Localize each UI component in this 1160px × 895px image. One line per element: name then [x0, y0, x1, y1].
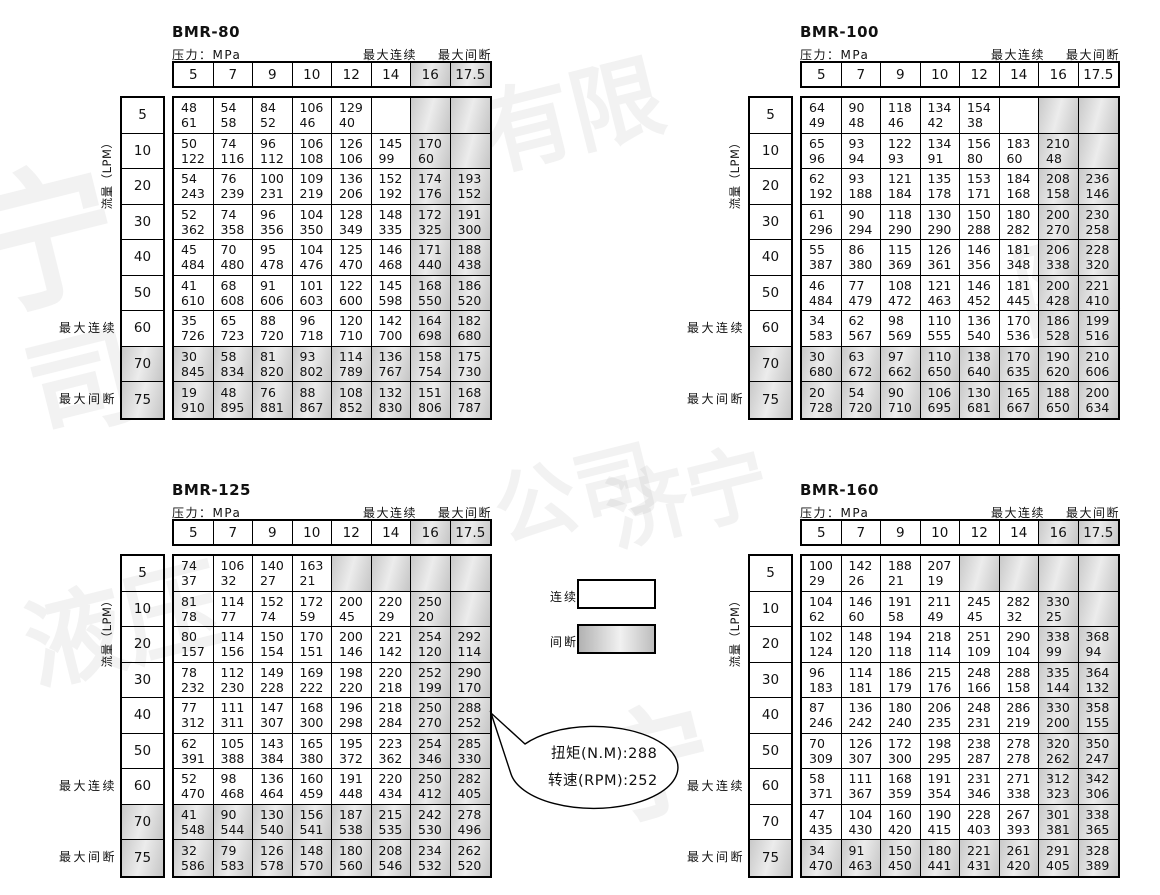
speed-value: 606 — [1086, 364, 1119, 379]
torque-value: 164 — [418, 313, 450, 328]
speed-value: 78 — [181, 609, 213, 624]
torque-value: 96 — [260, 207, 292, 222]
data-cell: 46484 — [802, 276, 842, 312]
data-cell: 30845 — [174, 347, 214, 383]
torque-value: 118 — [888, 100, 920, 115]
speed-value: 32 — [1007, 609, 1039, 624]
data-cell: 14660 — [842, 592, 882, 628]
flow-label-cell: 75 — [750, 382, 791, 418]
data-cell: 148335 — [372, 205, 412, 241]
data-cell: 248166 — [960, 663, 1000, 699]
data-cell: 76881 — [253, 382, 293, 418]
torque-value: 200 — [1046, 278, 1078, 293]
data-cell: 282405 — [451, 769, 491, 805]
torque-value: 61 — [809, 207, 841, 222]
data-cell: 156541 — [293, 805, 333, 841]
speed-value: 830 — [379, 400, 411, 415]
data-cell: 30680 — [802, 347, 842, 383]
pressure-header-cell: 17.5 — [451, 521, 491, 544]
data-cell: 70480 — [214, 240, 254, 276]
speed-value: 350 — [300, 222, 332, 237]
data-cell: 228403 — [960, 805, 1000, 841]
data-cell: 342306 — [1079, 769, 1119, 805]
speed-value: 634 — [1086, 400, 1119, 415]
speed-value: 726 — [181, 328, 213, 343]
torque-value: 199 — [1086, 313, 1119, 328]
max-continuous-row-label-bmr-100: 最大连续 — [650, 319, 745, 336]
table-title-bmr-100: BMR-100 — [800, 23, 879, 41]
data-cell — [1000, 98, 1040, 134]
flow-label-cell: 75 — [750, 840, 791, 876]
data-cell: 250270 — [411, 698, 451, 734]
speed-value: 348 — [1007, 257, 1039, 272]
torque-value: 210 — [1046, 136, 1078, 151]
data-grid-bmr-160: 1002914226188212071910462146601915821149… — [800, 554, 1120, 878]
speed-value: 463 — [928, 293, 960, 308]
torque-value: 130 — [928, 207, 960, 222]
pressure-header-cell: 17.5 — [1079, 521, 1119, 544]
callout-torque-text: 扭矩(N.M):288 — [551, 742, 657, 763]
speed-value: 199 — [418, 680, 450, 695]
speed-value: 242 — [849, 715, 881, 730]
speed-value: 718 — [300, 328, 332, 343]
speed-value: 219 — [1007, 715, 1039, 730]
torque-value: 134 — [928, 136, 960, 151]
data-cell: 148120 — [842, 627, 882, 663]
pressure-header-cell: 9 — [253, 521, 293, 544]
flow-label-column-bmr-160: 51020304050607075 — [748, 554, 793, 878]
speed-value: 32 — [221, 573, 253, 588]
torque-value: 186 — [888, 665, 920, 680]
torque-value: 245 — [967, 594, 999, 609]
torque-value: 106 — [300, 136, 332, 151]
data-cell: 152192 — [372, 169, 412, 205]
torque-value: 146 — [967, 278, 999, 293]
pressure-header-cell: 10 — [921, 63, 961, 86]
data-cell: 230258 — [1079, 205, 1119, 241]
speed-value: 405 — [1046, 858, 1078, 873]
pressure-header-cell: 10 — [293, 63, 333, 86]
data-cell: 220218 — [372, 663, 412, 699]
speed-value: 243 — [181, 186, 213, 201]
speed-value: 114 — [458, 644, 491, 659]
speed-value: 200 — [1046, 715, 1078, 730]
pressure-header-cell: 5 — [174, 63, 214, 86]
speed-value: 166 — [967, 680, 999, 695]
speed-value: 541 — [300, 822, 332, 837]
torque-value: 168 — [418, 278, 450, 293]
speed-value: 548 — [181, 822, 213, 837]
torque-value: 188 — [1046, 385, 1078, 400]
torque-value: 110 — [928, 349, 960, 364]
torque-value: 81 — [181, 594, 213, 609]
torque-value: 170 — [418, 136, 450, 151]
data-cell: 18360 — [1000, 134, 1040, 170]
torque-value: 30 — [809, 349, 841, 364]
data-cell: 149228 — [253, 663, 293, 699]
data-cell: 175730 — [451, 347, 491, 383]
data-cell: 128349 — [332, 205, 372, 241]
torque-value: 148 — [300, 843, 332, 858]
torque-value: 30 — [181, 349, 213, 364]
torque-value: 140 — [260, 558, 292, 573]
data-cell: 169222 — [293, 663, 333, 699]
torque-value: 278 — [458, 807, 491, 822]
torque-value: 152 — [379, 171, 411, 186]
speed-value: 59 — [300, 609, 332, 624]
speed-value: 767 — [379, 364, 411, 379]
torque-value: 288 — [458, 700, 491, 715]
speed-value: 171 — [967, 186, 999, 201]
data-cell: 101603 — [293, 276, 333, 312]
flow-label-cell: 5 — [122, 556, 163, 592]
speed-value: 338 — [1046, 257, 1078, 272]
speed-value: 650 — [1046, 400, 1078, 415]
speed-value: 80 — [967, 151, 999, 166]
table-title-bmr-160: BMR-160 — [800, 481, 879, 499]
data-cell: 48895 — [214, 382, 254, 418]
speed-value: 410 — [1086, 293, 1119, 308]
torque-value: 134 — [928, 100, 960, 115]
torque-value: 90 — [849, 207, 881, 222]
data-cell: 88720 — [253, 311, 293, 347]
speed-value: 26 — [849, 573, 881, 588]
torque-value: 168 — [300, 700, 332, 715]
data-cell: 34583 — [802, 311, 842, 347]
torque-value: 254 — [418, 629, 450, 644]
flow-label-cell: 30 — [750, 205, 791, 241]
data-cell: 5458 — [214, 98, 254, 134]
speed-value: 290 — [888, 222, 920, 237]
data-cell: 186528 — [1039, 311, 1079, 347]
data-cell: 200428 — [1039, 276, 1079, 312]
flow-axis-label-bmr-160: 流量（LPM） — [727, 581, 741, 681]
speed-value: 295 — [928, 751, 960, 766]
torque-value: 170 — [1007, 313, 1039, 328]
data-cell: 63672 — [842, 347, 882, 383]
torque-value: 168 — [458, 385, 491, 400]
speed-value: 583 — [809, 328, 841, 343]
torque-value: 338 — [1086, 807, 1119, 822]
torque-value: 221 — [967, 843, 999, 858]
torque-value: 149 — [260, 665, 292, 680]
pressure-header-cell: 12 — [960, 521, 1000, 544]
speed-value: 806 — [418, 400, 450, 415]
speed-value: 478 — [260, 257, 292, 272]
torque-value: 221 — [379, 629, 411, 644]
torque-value: 252 — [418, 665, 450, 680]
data-cell: 126106 — [332, 134, 372, 170]
data-cell: 210606 — [1079, 347, 1119, 383]
max-continuous-row-label-bmr-160: 最大连续 — [650, 777, 745, 794]
pressure-header-row-bmr-100: 5791012141617.5 — [800, 61, 1120, 88]
speed-value: 230 — [221, 680, 253, 695]
flow-label-cell: 75 — [122, 382, 163, 418]
data-cell — [960, 556, 1000, 592]
data-cell: 150450 — [881, 840, 921, 876]
data-cell — [372, 98, 412, 134]
data-cell: 95478 — [253, 240, 293, 276]
data-cell: 174176 — [411, 169, 451, 205]
torque-value: 156 — [967, 136, 999, 151]
speed-value: 218 — [379, 680, 411, 695]
data-cell — [1039, 556, 1079, 592]
data-cell: 146452 — [960, 276, 1000, 312]
speed-value: 335 — [379, 222, 411, 237]
speed-value: 40 — [339, 115, 371, 130]
speed-value: 480 — [221, 257, 253, 272]
flow-label-cell: 40 — [122, 240, 163, 276]
speed-value: 235 — [928, 715, 960, 730]
speed-value: 45 — [967, 609, 999, 624]
torque-value: 62 — [849, 313, 881, 328]
speed-value: 540 — [260, 822, 292, 837]
speed-value: 170 — [458, 680, 491, 695]
torque-value: 114 — [339, 349, 371, 364]
data-cell: 76239 — [214, 169, 254, 205]
pressure-header-cell: 14 — [1000, 63, 1040, 86]
flow-label-cell: 70 — [750, 805, 791, 841]
speed-value: 567 — [849, 328, 881, 343]
data-cell — [372, 556, 412, 592]
speed-value: 270 — [1046, 222, 1078, 237]
speed-value: 278 — [1007, 751, 1039, 766]
data-grid-bmr-100: 6449904811846134421543865969394122931349… — [800, 96, 1120, 420]
speed-value: 710 — [339, 328, 371, 343]
speed-value: 176 — [418, 186, 450, 201]
torque-value: 47 — [809, 807, 841, 822]
speed-value: 228 — [260, 680, 292, 695]
speed-value: 606 — [260, 293, 292, 308]
torque-value: 128 — [339, 207, 371, 222]
data-cell: 50122 — [174, 134, 214, 170]
data-cell: 10029 — [802, 556, 842, 592]
data-cell: 15274 — [253, 592, 293, 628]
data-cell: 271338 — [1000, 769, 1040, 805]
data-cell: 4861 — [174, 98, 214, 134]
data-cell: 151806 — [411, 382, 451, 418]
torque-value: 312 — [1046, 771, 1078, 786]
data-cell: 338365 — [1079, 805, 1119, 841]
torque-value: 108 — [339, 385, 371, 400]
data-cell: 208546 — [372, 840, 412, 876]
flow-label-cell: 40 — [750, 698, 791, 734]
speed-value: 667 — [1007, 400, 1039, 415]
torque-value: 106 — [221, 558, 253, 573]
torque-value: 191 — [888, 594, 920, 609]
data-cell: 208158 — [1039, 169, 1079, 205]
flow-label-cell: 30 — [750, 663, 791, 699]
speed-value: 361 — [928, 257, 960, 272]
flow-label-cell: 5 — [122, 98, 163, 134]
torque-value: 288 — [1007, 665, 1039, 680]
torque-value: 291 — [1046, 843, 1078, 858]
torque-value: 102 — [809, 629, 841, 644]
speed-value: 77 — [221, 609, 253, 624]
data-cell: 90294 — [842, 205, 882, 241]
data-cell: 160420 — [881, 805, 921, 841]
pressure-header-cell: 14 — [372, 63, 412, 86]
speed-value: 60 — [1007, 151, 1039, 166]
data-cell: 105388 — [214, 734, 254, 770]
torque-value: 285 — [458, 736, 491, 751]
speed-value: 428 — [1046, 293, 1078, 308]
speed-value: 118 — [888, 644, 920, 659]
speed-value: 459 — [300, 786, 332, 801]
pressure-header-cell: 9 — [881, 521, 921, 544]
pressure-header-cell: 10 — [293, 521, 333, 544]
data-cell — [411, 98, 451, 134]
speed-value: 42 — [928, 115, 960, 130]
speed-value: 306 — [1086, 786, 1119, 801]
data-cell: 10632 — [214, 556, 254, 592]
speed-value: 181 — [849, 680, 881, 695]
pressure-header-cell: 7 — [842, 521, 882, 544]
torque-value: 191 — [458, 207, 491, 222]
data-cell: 52362 — [174, 205, 214, 241]
torque-value: 160 — [300, 771, 332, 786]
torque-value: 136 — [260, 771, 292, 786]
speed-value: 151 — [300, 644, 332, 659]
data-cell: 172300 — [881, 734, 921, 770]
torque-value: 97 — [888, 349, 920, 364]
torque-value: 220 — [379, 771, 411, 786]
torque-value: 196 — [339, 700, 371, 715]
data-cell: 11477 — [214, 592, 254, 628]
speed-value: 698 — [418, 328, 450, 343]
data-cell: 181348 — [1000, 240, 1040, 276]
torque-value: 200 — [1086, 385, 1119, 400]
speed-value: 608 — [221, 293, 253, 308]
data-cell: 180240 — [881, 698, 921, 734]
speed-value: 412 — [418, 786, 450, 801]
flow-axis-label-bmr-100: 流量（LPM） — [727, 123, 741, 223]
torque-value: 328 — [1086, 843, 1119, 858]
data-cell — [1079, 98, 1119, 134]
flow-label-cell: 70 — [750, 347, 791, 383]
speed-value: 290 — [928, 222, 960, 237]
speed-value: 96 — [809, 151, 841, 166]
data-cell: 215176 — [921, 663, 961, 699]
torque-value: 46 — [809, 278, 841, 293]
torque-value: 286 — [1007, 700, 1039, 715]
torque-value: 154 — [967, 100, 999, 115]
data-cell: 231346 — [960, 769, 1000, 805]
speed-value: 109 — [967, 644, 999, 659]
torque-value: 301 — [1046, 807, 1078, 822]
speed-value: 391 — [181, 751, 213, 766]
pressure-header-row-bmr-160: 5791012141617.5 — [800, 519, 1120, 546]
speed-value: 152 — [458, 186, 491, 201]
data-cell: 96183 — [802, 663, 842, 699]
torque-value: 96 — [809, 665, 841, 680]
table-title-bmr-125: BMR-125 — [172, 481, 251, 499]
data-cell: 96356 — [253, 205, 293, 241]
speed-value: 252 — [458, 715, 491, 730]
flow-axis-label-bmr-125: 流量（LPM） — [99, 581, 113, 681]
flow-label-cell: 5 — [750, 556, 791, 592]
speed-value: 484 — [809, 293, 841, 308]
data-cell: 138640 — [960, 347, 1000, 383]
speed-value: 52 — [260, 115, 292, 130]
data-cell: 143384 — [253, 734, 293, 770]
torque-value: 184 — [1007, 171, 1039, 186]
data-cell — [451, 98, 491, 134]
data-cell: 15680 — [960, 134, 1000, 170]
torque-value: 335 — [1046, 665, 1078, 680]
speed-value: 158 — [1007, 680, 1039, 695]
speed-value: 120 — [418, 644, 450, 659]
torque-value: 271 — [1007, 771, 1039, 786]
torque-value: 100 — [809, 558, 841, 573]
torque-value: 282 — [458, 771, 491, 786]
data-cell: 191354 — [921, 769, 961, 805]
speed-value: 346 — [418, 751, 450, 766]
data-cell: 182680 — [451, 311, 491, 347]
speed-value: 20 — [418, 609, 450, 624]
speed-value: 106 — [339, 151, 371, 166]
data-cell: 221142 — [372, 627, 412, 663]
torque-value: 215 — [928, 665, 960, 680]
data-cell: 132830 — [372, 382, 412, 418]
data-cell: 181445 — [1000, 276, 1040, 312]
data-cell: 206235 — [921, 698, 961, 734]
data-cell: 33025 — [1039, 592, 1079, 628]
pressure-header-cell: 7 — [842, 63, 882, 86]
flow-label-cell: 50 — [122, 734, 163, 770]
data-cell: 135178 — [921, 169, 961, 205]
torque-value: 62 — [809, 171, 841, 186]
speed-value: 496 — [458, 822, 491, 837]
flow-label-cell: 30 — [122, 663, 163, 699]
torque-value: 142 — [379, 313, 411, 328]
flow-label-cell: 70 — [122, 347, 163, 383]
torque-value: 98 — [888, 313, 920, 328]
torque-value: 181 — [1007, 278, 1039, 293]
data-cell: 54720 — [842, 382, 882, 418]
data-cell: 330200 — [1039, 698, 1079, 734]
speed-value: 284 — [379, 715, 411, 730]
speed-value: 156 — [221, 644, 253, 659]
data-cell: 108852 — [332, 382, 372, 418]
speed-value: 62 — [809, 609, 841, 624]
speed-value: 728 — [809, 400, 841, 415]
data-cell: 218114 — [921, 627, 961, 663]
data-cell: 77312 — [174, 698, 214, 734]
speed-value: 720 — [849, 400, 881, 415]
data-cell: 234532 — [411, 840, 451, 876]
data-cell: 198295 — [921, 734, 961, 770]
torque-value: 104 — [300, 207, 332, 222]
speed-value: 598 — [379, 293, 411, 308]
speed-value: 240 — [888, 715, 920, 730]
flow-label-cell: 60 — [750, 311, 791, 347]
data-cell: 100231 — [253, 169, 293, 205]
torque-value: 41 — [181, 807, 213, 822]
speed-value: 300 — [458, 222, 491, 237]
torque-value: 35 — [181, 313, 213, 328]
torque-value: 126 — [928, 242, 960, 257]
data-cell: 145598 — [372, 276, 412, 312]
speed-value: 365 — [1086, 822, 1119, 837]
speed-value: 154 — [260, 644, 292, 659]
data-cell: 62567 — [842, 311, 882, 347]
torque-value: 64 — [809, 100, 841, 115]
data-cell: 200270 — [1039, 205, 1079, 241]
data-cell: 102124 — [802, 627, 842, 663]
torque-value: 65 — [809, 136, 841, 151]
data-cell: 146356 — [960, 240, 1000, 276]
